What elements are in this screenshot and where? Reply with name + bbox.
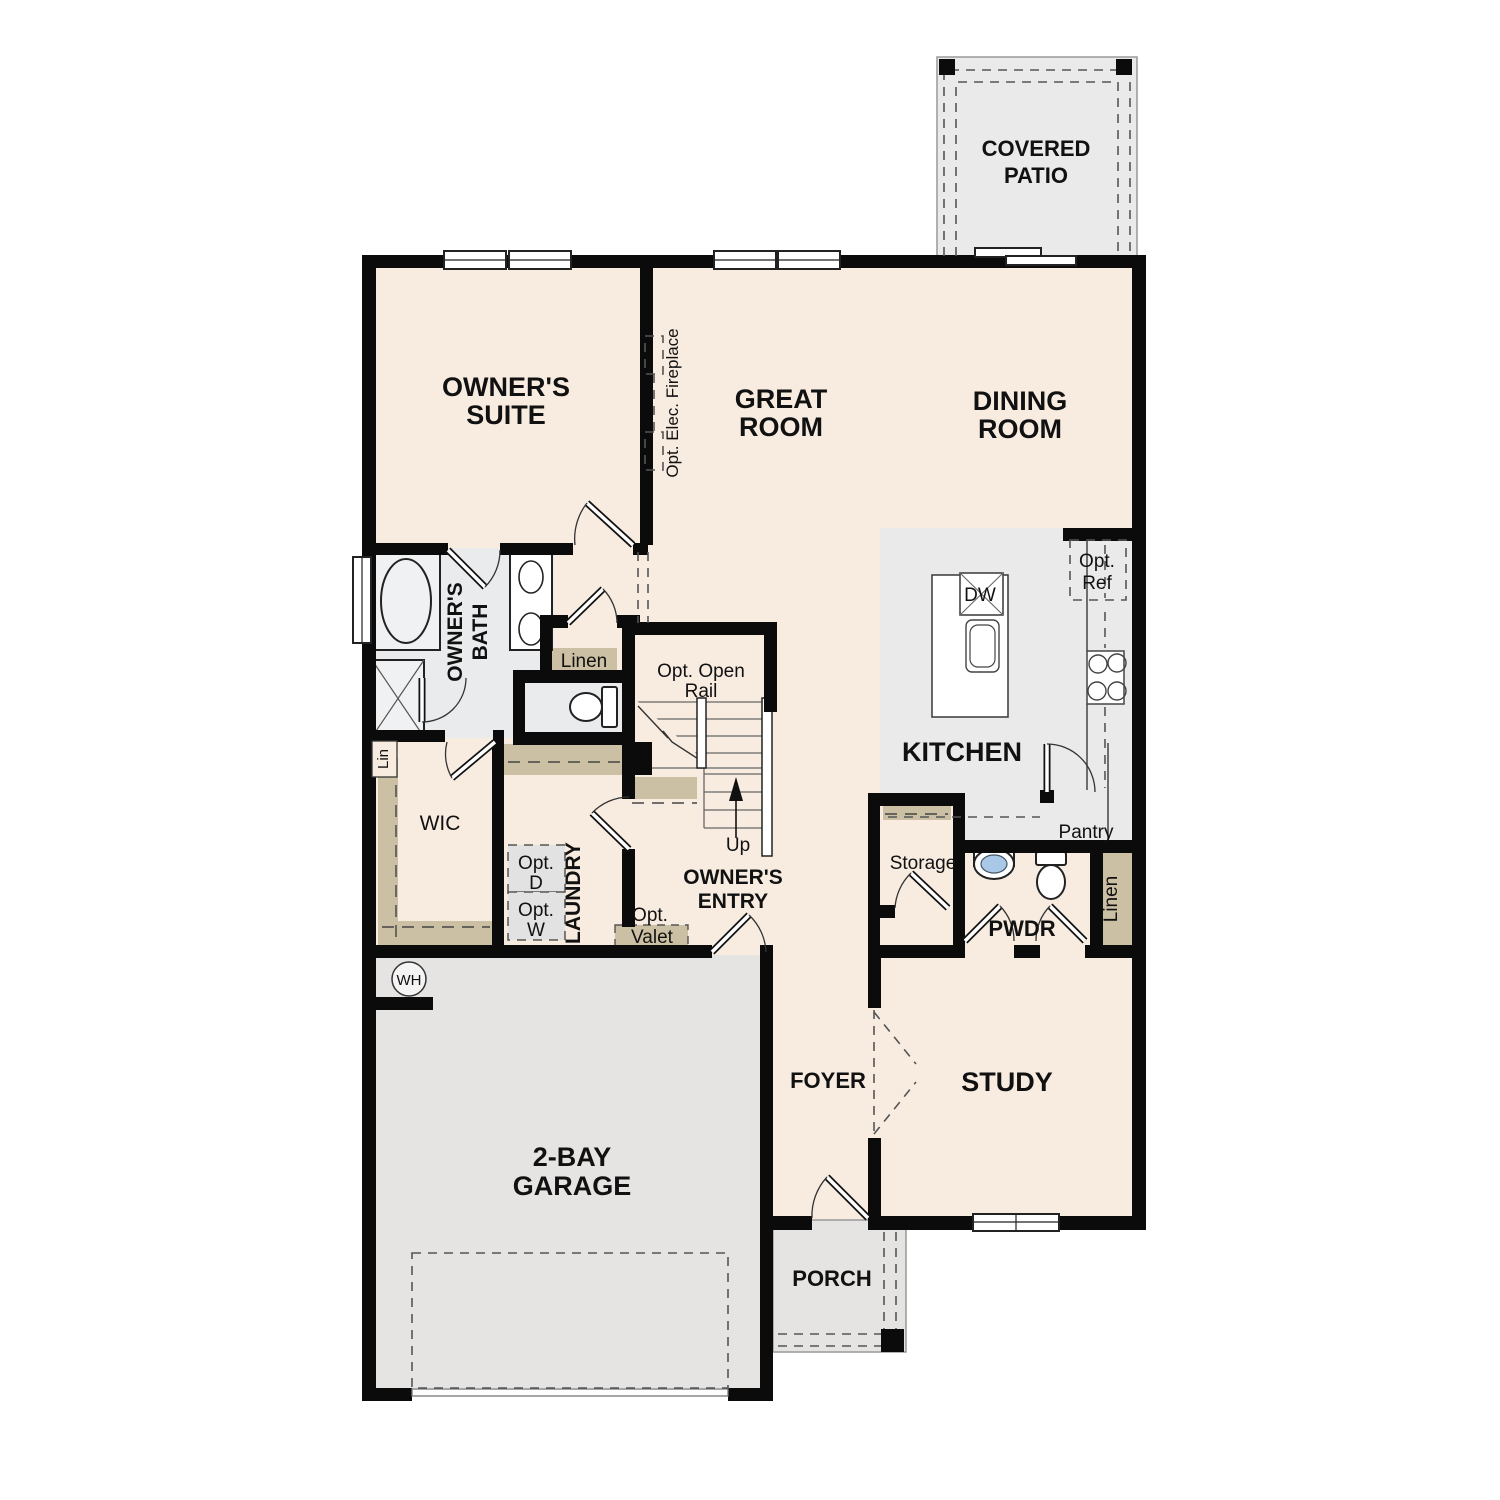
annotation-up: Up bbox=[726, 835, 750, 856]
annotation-lin-closet: Lin bbox=[375, 749, 392, 769]
room-label-study: STUDY bbox=[961, 1067, 1053, 1097]
room-label-foyer: FOYER bbox=[790, 1068, 866, 1093]
toilet-pwdr bbox=[1036, 852, 1066, 899]
annotation-linen-hall: Linen bbox=[1101, 876, 1122, 923]
shower bbox=[372, 660, 424, 737]
annotation-opt-elec-fireplace: Opt. Elec. Fireplace bbox=[663, 328, 682, 477]
annotation-opt-open-rail-1: Opt. Open bbox=[657, 661, 745, 682]
room-label-owners-entry-2: ENTRY bbox=[698, 890, 768, 913]
room-label-pantry: Pantry bbox=[1059, 822, 1114, 843]
stair-rail-right bbox=[762, 698, 772, 856]
room-label-great-room-1: GREAT bbox=[735, 384, 828, 414]
annotation-linen-bath: Linen bbox=[561, 651, 608, 672]
porch-post bbox=[881, 1329, 904, 1352]
bath-window bbox=[353, 557, 371, 643]
room-label-laundry: LAUNDRY bbox=[562, 842, 585, 944]
room-label-wic: WIC bbox=[420, 812, 461, 835]
annotation-opt-valet-2: Valet bbox=[631, 927, 674, 948]
annotation-opt-w-1: Opt. bbox=[518, 900, 554, 921]
room-label-garage-2: GARAGE bbox=[513, 1171, 632, 1201]
annotation-opt-open-rail-2: Rail bbox=[685, 681, 718, 702]
room-label-kitchen: KITCHEN bbox=[902, 737, 1022, 767]
annotation-opt-valet-1: Opt. bbox=[632, 905, 668, 926]
room-label-owners-bath-1: OWNER'S bbox=[444, 582, 467, 682]
annotation-opt-d-1: Opt. bbox=[518, 853, 554, 874]
pwdr-sink bbox=[974, 849, 1014, 879]
room-label-covered-patio-2: PATIO bbox=[1004, 163, 1068, 188]
cooktop bbox=[1087, 651, 1126, 704]
room-label-storage: Storage bbox=[890, 853, 957, 874]
great-room-window bbox=[714, 251, 840, 269]
room-label-dining-room-1: DINING bbox=[973, 386, 1068, 416]
room-label-covered-patio-1: COVERED bbox=[982, 136, 1091, 161]
room-label-porch: PORCH bbox=[792, 1266, 871, 1291]
stair-rail-left bbox=[697, 698, 706, 768]
study-window bbox=[973, 1214, 1059, 1231]
wic-shelf-left bbox=[378, 758, 398, 945]
room-label-owners-suite-1: OWNER'S bbox=[442, 372, 570, 402]
annotation-opt-ref-2: Ref bbox=[1082, 573, 1112, 594]
room-label-owners-bath-2: BATH bbox=[469, 604, 492, 661]
laundry-shelf-top bbox=[504, 744, 624, 775]
kitchen-sink bbox=[966, 620, 999, 672]
garage-door bbox=[412, 1388, 728, 1401]
room-label-owners-suite-2: SUITE bbox=[466, 400, 546, 430]
entry-shelf bbox=[632, 777, 697, 799]
bathtub bbox=[372, 552, 440, 650]
annotation-dishwasher: DW bbox=[964, 585, 996, 606]
floor-plan-drawing: COVERED PATIO OWNER'S SUITE GREAT ROOM D… bbox=[0, 0, 1500, 1500]
annotation-opt-d-2: D bbox=[529, 873, 543, 894]
room-label-great-room-2: ROOM bbox=[739, 412, 823, 442]
room-label-owners-entry-1: OWNER'S bbox=[683, 866, 783, 889]
annotation-opt-w-2: W bbox=[527, 920, 545, 941]
annotation-water-heater: WH bbox=[397, 972, 422, 989]
floor-plan: COVERED PATIO OWNER'S SUITE GREAT ROOM D… bbox=[0, 0, 1500, 1500]
room-label-pwdr: PWDR bbox=[988, 916, 1055, 941]
patio-post-right bbox=[1116, 59, 1132, 75]
patio-post-left bbox=[939, 59, 955, 75]
storage-shelf bbox=[883, 806, 951, 820]
room-label-garage-1: 2-BAY bbox=[533, 1142, 612, 1172]
annotation-opt-ref-1: Opt. bbox=[1079, 551, 1115, 572]
room-label-dining-room-2: ROOM bbox=[978, 414, 1062, 444]
